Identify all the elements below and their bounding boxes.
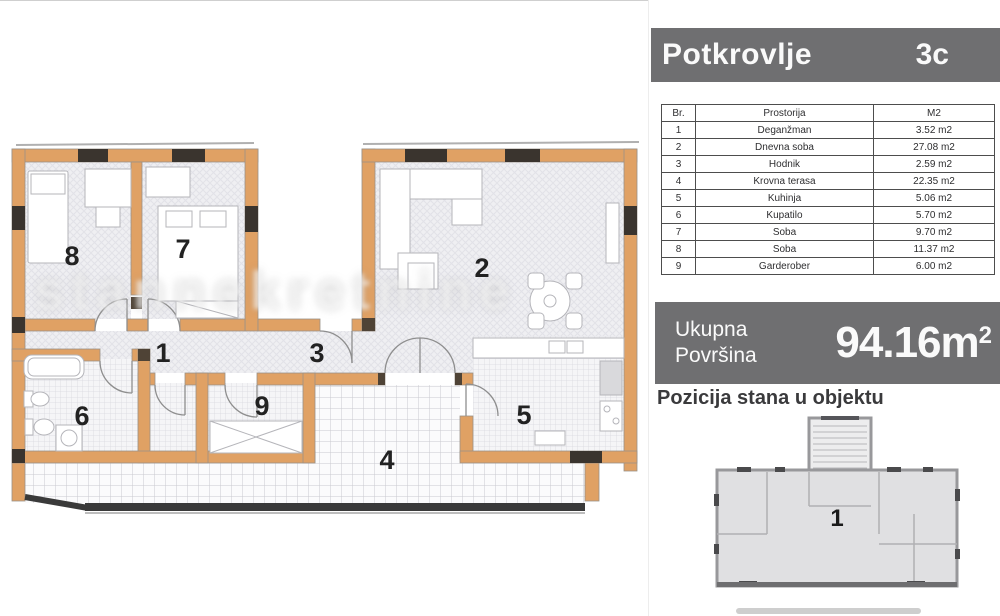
floor-title: Potkrovlje (651, 38, 812, 72)
room-label-5: 5 (516, 400, 531, 430)
unit-code: 3c (916, 38, 1000, 72)
table-row: 1Deganžman3.52 m2 (662, 122, 995, 139)
col-header-prostorija: Prostorija (696, 105, 874, 122)
title-banner: Potkrovlje 3c (651, 28, 1000, 82)
total-area-value: 94.16m2 (835, 318, 1000, 368)
screenshot-canvas: 1 2 3 4 5 6 7 8 9 stannekretnine Potkrov… (0, 0, 1000, 616)
floor-plan-area: 1 2 3 4 5 6 7 8 9 (0, 0, 648, 616)
table-header-row: Br. Prostorija M2 (662, 105, 995, 122)
table-row: 9Garderober6.00 m2 (662, 258, 995, 275)
minimap-stairwell (809, 416, 871, 474)
table-row: 3Hodnik2.59 m2 (662, 156, 995, 173)
info-panel: Potkrovlje 3c Br. Prostorija M2 1Deganžm… (648, 0, 1000, 616)
minimap-unit-label: 1 (830, 505, 843, 532)
table-row: 8Soba11.37 m2 (662, 241, 995, 258)
room-label-2: 2 (474, 253, 489, 283)
col-header-br: Br. (662, 105, 696, 122)
building-position-minimap: 1 (709, 414, 965, 592)
room-label-6: 6 (74, 401, 89, 431)
col-header-m2: M2 (874, 105, 995, 122)
room-label-1: 1 (155, 338, 170, 368)
table-row: 4Krovna terasa22.35 m2 (662, 173, 995, 190)
floor-plan-svg: 1 2 3 4 5 6 7 8 9 (0, 1, 648, 616)
cropped-object-strip (736, 608, 921, 614)
room-label-7: 7 (175, 234, 190, 264)
rooms-area-table: Br. Prostorija M2 1Deganžman3.52 m2 2Dne… (661, 104, 995, 275)
table-row: 7Soba9.70 m2 (662, 224, 995, 241)
room-label-8: 8 (64, 241, 79, 271)
room-label-4: 4 (379, 445, 394, 475)
room-label-9: 9 (254, 391, 269, 421)
position-heading: Pozicija stana u objektu (657, 387, 884, 410)
table-row: 5Kuhinja5.06 m2 (662, 190, 995, 207)
squared-sup: 2 (979, 322, 991, 349)
room-label-3: 3 (309, 338, 324, 368)
roof-edge-lines (16, 142, 639, 145)
total-area-banner: Ukupna Površina 94.16m2 (655, 302, 1000, 384)
total-area-label: Ukupna Površina (655, 317, 757, 369)
table-row: 6Kupatilo5.70 m2 (662, 207, 995, 224)
table-row: 2Dnevna soba27.08 m2 (662, 139, 995, 156)
